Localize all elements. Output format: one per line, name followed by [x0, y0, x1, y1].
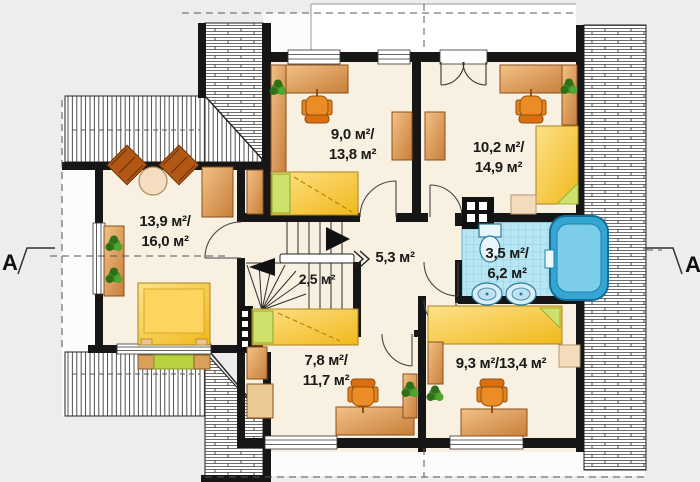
area-line: 11,7 м² — [276, 371, 376, 391]
window-left — [93, 223, 105, 294]
side-table — [511, 195, 536, 214]
area-line: 13,9 м²/ — [110, 212, 220, 232]
wardrobe — [425, 112, 445, 160]
section-marker-a-left: A — [2, 252, 18, 274]
desk — [461, 409, 527, 436]
bathtub — [545, 216, 608, 300]
window-top-1 — [288, 50, 340, 64]
bathtub-faucet — [545, 250, 554, 268]
wardrobe — [247, 170, 263, 214]
area-line: 3,5 м²/ — [468, 244, 546, 264]
wardrobe — [202, 167, 233, 217]
room-area-label-bottom-middle-bedroom: 7,8 м²/ 11,7 м² — [276, 351, 376, 391]
wardrobe — [562, 65, 577, 125]
bed-double — [138, 283, 210, 345]
desk — [286, 65, 348, 93]
area-line: 7,8 м²/ — [276, 351, 376, 371]
bed-single — [428, 306, 562, 344]
room-area-label-staircase: 2,5 м² — [283, 270, 351, 288]
bed-single — [271, 172, 358, 215]
floor-plan: 13,9 м²/ 16,0 м² 9,0 м²/ 13,8 м² 10,2 м²… — [0, 0, 700, 482]
room-area-label-hall: 5,3 м² — [360, 248, 430, 268]
window-bottom-1 — [265, 436, 337, 449]
area-line: 10,2 м²/ — [446, 138, 551, 158]
desk — [336, 407, 414, 435]
sink — [506, 283, 536, 305]
flue-block — [237, 306, 253, 352]
room-area-label-top-middle-bedroom: 9,0 м²/ 13,8 м² — [300, 125, 405, 165]
area-line: 14,9 м² — [446, 158, 551, 178]
area-line: 9,0 м²/ — [300, 125, 405, 145]
sink — [472, 283, 502, 305]
dresser — [247, 384, 273, 418]
area-line: 9,3 м²/13,4 м² — [426, 354, 576, 374]
wardrobe — [247, 347, 267, 379]
floor-plan-drawing — [0, 0, 700, 482]
balcony-planter — [138, 355, 210, 369]
round-table — [139, 167, 167, 195]
area-line: 16,0 м² — [110, 232, 220, 252]
window-top-2 — [378, 50, 410, 64]
window-bottom-2 — [450, 436, 523, 449]
section-marker-a-right: A — [685, 254, 700, 276]
area-line: 13,8 м² — [300, 145, 405, 165]
room-area-label-bottom-right-bedroom: 9,3 м²/13,4 м² — [426, 354, 576, 374]
room-area-label-bathroom: 3,5 м²/ 6,2 м² — [468, 244, 546, 284]
bed-single — [252, 309, 358, 345]
area-line: 5,3 м² — [360, 248, 430, 268]
area-line: 6,2 м² — [468, 264, 546, 284]
room-area-label-left-bedroom: 13,9 м²/ 16,0 м² — [110, 212, 220, 252]
desk — [500, 65, 564, 93]
room-area-label-top-right-bedroom: 10,2 м²/ 14,9 м² — [446, 138, 551, 178]
area-line: 2,5 м² — [283, 270, 351, 288]
